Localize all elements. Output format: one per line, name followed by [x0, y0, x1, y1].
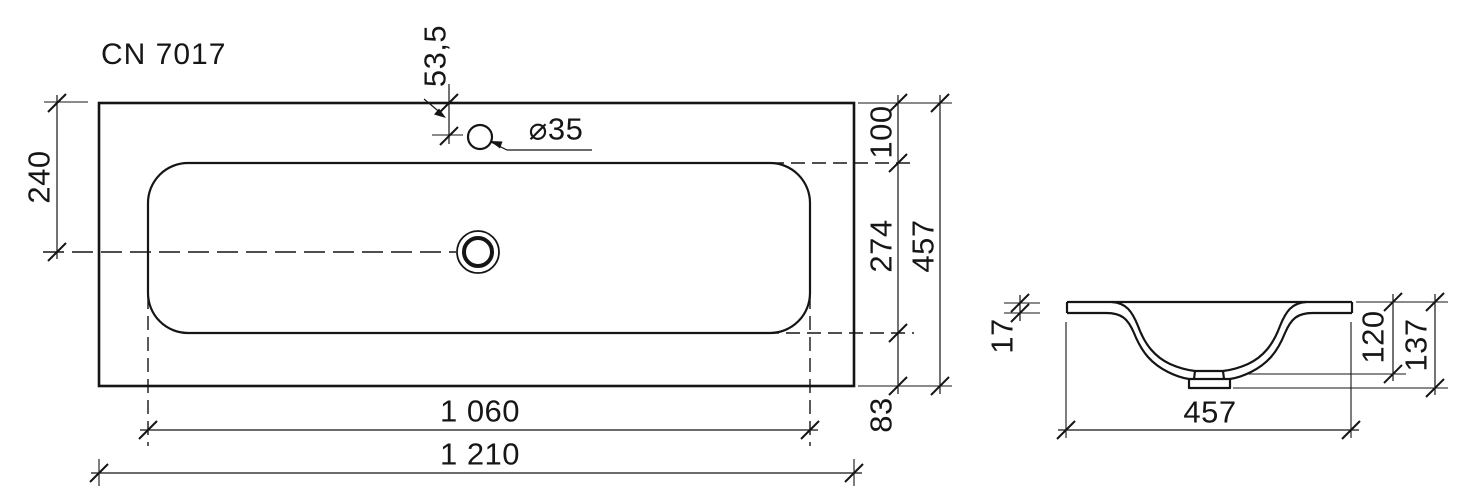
dim-basin-inner-width: 1 060	[440, 396, 520, 427]
drawing-linework	[0, 0, 1464, 500]
dim-overall-depth: 457	[908, 219, 939, 272]
dim-bowl-depth-inner: 120	[1358, 310, 1389, 363]
countertop-outline	[99, 103, 854, 386]
dim-top-rim: 100	[866, 105, 897, 158]
plan-extension-lines-dashed	[148, 163, 914, 446]
model-number: CN 7017	[101, 40, 226, 70]
dim-bottom-rim: 83	[866, 397, 897, 432]
dim-top-to-centerline: 240	[24, 150, 55, 203]
dim-faucet-hole-offset: 53,5	[420, 25, 451, 87]
technical-drawing-canvas: CN 7017 240 53,5 ⌀35 100 274 457 83 1 06…	[0, 0, 1464, 500]
faucet-hole	[468, 125, 492, 149]
dim-overall-width: 1 210	[440, 439, 520, 470]
dim-overall-height: 137	[1401, 318, 1432, 371]
section-outer-contour	[1067, 313, 1352, 388]
section-drain-step	[1189, 371, 1230, 379]
dim-faucet-hole-diameter: ⌀35	[529, 114, 584, 145]
section-inner-contour	[1112, 302, 1306, 371]
dim-rim-thickness: 17	[987, 318, 1018, 353]
basin-outline	[148, 163, 810, 333]
drain-hole	[457, 231, 499, 273]
dim-basin-inner-depth: 274	[866, 219, 897, 272]
dim-section-width: 457	[1183, 397, 1236, 428]
